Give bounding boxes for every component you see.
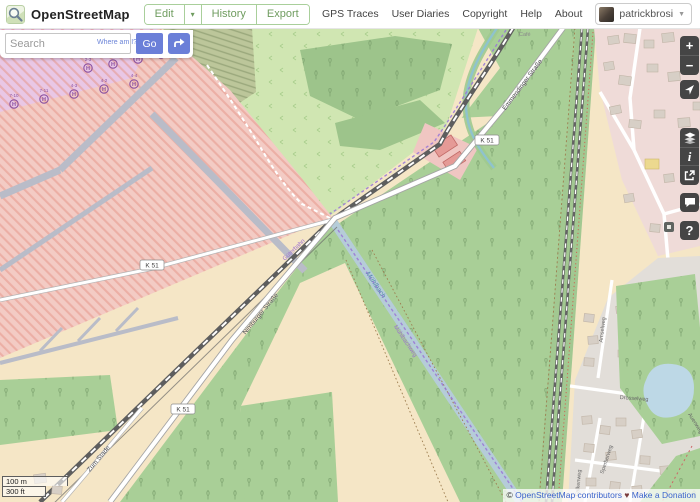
page-title: OpenStreetMap: [31, 7, 130, 22]
history-button[interactable]: History: [202, 5, 257, 24]
osm-logo-icon: [6, 5, 25, 24]
scale-metric: 100 m: [2, 476, 68, 486]
header-button-group: Edit ▾ History Export: [144, 4, 310, 25]
heart-icon: ♥: [622, 490, 632, 500]
locate-arrow-icon: [684, 84, 695, 95]
nav-user-diaries[interactable]: User Diaries: [392, 8, 450, 20]
share-icon: [684, 170, 695, 181]
attribution: © OpenStreetMap contributors ♥ Make a Do…: [503, 489, 700, 502]
svg-text:K 51: K 51: [480, 138, 494, 145]
layers-icon: [684, 132, 696, 144]
pond: [643, 364, 694, 418]
nav-help[interactable]: Help: [520, 8, 542, 20]
directions-button[interactable]: [168, 33, 190, 54]
where-am-i-link[interactable]: Where am I?: [97, 39, 137, 46]
zoom-in-button[interactable]: +: [680, 36, 699, 55]
svg-text:7-11: 7-11: [40, 88, 49, 93]
map-canvas[interactable]: HHHH HHHHH 2-32-42-82-9 7-107-114-34-24-…: [0, 28, 700, 502]
copyright-prefix: ©: [507, 490, 516, 500]
svg-text:H: H: [12, 102, 16, 108]
osm-contributors-link[interactable]: OpenStreetMap contributors: [515, 490, 622, 500]
plus-icon: +: [686, 38, 694, 53]
poi-glyph: [667, 225, 671, 229]
svg-text:H: H: [132, 82, 136, 88]
layers-button[interactable]: [680, 128, 699, 147]
username: patrickbrosi: [619, 8, 673, 20]
top-navbar: OpenStreetMap Edit ▾ History Export GPS …: [0, 0, 700, 29]
poi-label: Café: [519, 32, 531, 38]
go-button[interactable]: Go: [136, 33, 163, 54]
svg-text:K 51: K 51: [176, 407, 190, 414]
nav-copyright[interactable]: Copyright: [462, 8, 507, 20]
share-button[interactable]: [680, 166, 699, 185]
edit-button[interactable]: Edit: [145, 5, 185, 24]
directions-icon: [173, 37, 186, 50]
note-bubble-icon: [684, 197, 696, 208]
svg-text:H: H: [42, 97, 46, 103]
donate-link[interactable]: Make a Donation: [632, 490, 696, 500]
yellow-building: [645, 159, 659, 169]
svg-text:4-3: 4-3: [71, 83, 78, 88]
question-icon: ?: [686, 223, 694, 238]
svg-text:K 51: K 51: [145, 263, 159, 270]
info-icon: i: [688, 149, 692, 165]
svg-text:H: H: [86, 66, 90, 72]
help-button[interactable]: ?: [680, 221, 699, 240]
user-menu[interactable]: patrickbrosi ▼: [595, 3, 692, 25]
user-caret-icon: ▼: [678, 11, 685, 18]
locate-button[interactable]: [680, 80, 699, 99]
add-note-button[interactable]: [680, 193, 699, 212]
svg-text:H: H: [136, 57, 140, 63]
scale-imperial: 300 ft: [2, 486, 46, 497]
svg-text:4-2: 4-2: [101, 78, 108, 83]
search-panel: Where am I? Go: [0, 30, 193, 58]
svg-text:7-10: 7-10: [9, 93, 19, 98]
svg-text:H: H: [111, 62, 115, 68]
brand[interactable]: OpenStreetMap: [6, 5, 130, 24]
nav-about[interactable]: About: [555, 8, 582, 20]
nav-gps-traces[interactable]: GPS Traces: [322, 8, 379, 20]
avatar: [599, 7, 614, 22]
edit-dropdown-caret[interactable]: ▾: [185, 5, 202, 24]
scale-bar: 100 m 300 ft: [2, 476, 68, 497]
map-render: HHHH HHHHH 2-32-42-82-9 7-107-114-34-24-…: [0, 28, 700, 502]
zoom-out-button[interactable]: −: [680, 56, 699, 75]
layers-control-group: i: [680, 128, 699, 185]
export-button[interactable]: Export: [257, 5, 309, 24]
minus-icon: −: [686, 58, 694, 73]
zoom-control: + −: [680, 36, 699, 75]
map-data-button[interactable]: i: [680, 148, 699, 165]
svg-text:H: H: [102, 87, 106, 93]
svg-text:H: H: [72, 92, 76, 98]
svg-text:4-4: 4-4: [131, 73, 138, 78]
header-links: GPS Traces User Diaries Copyright Help A…: [322, 3, 692, 25]
